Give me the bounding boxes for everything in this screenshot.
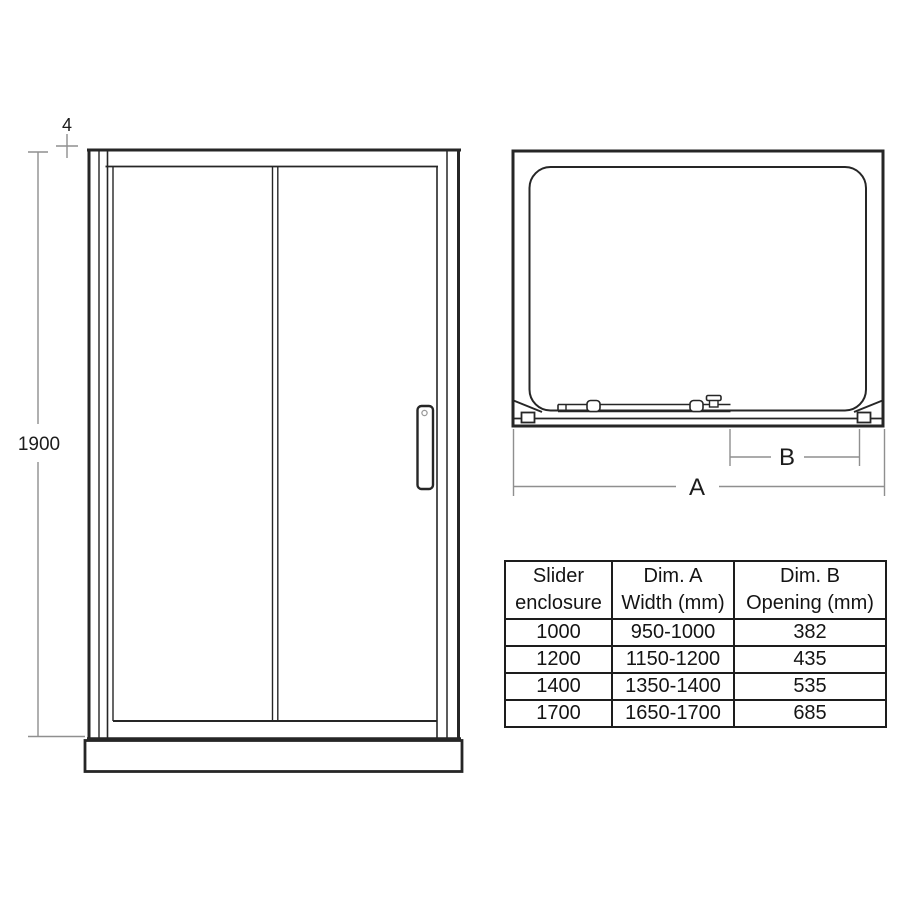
cell-dim-a-width: 1150-1200	[612, 646, 734, 673]
door-handle	[418, 406, 434, 489]
plan-view: B A	[513, 151, 885, 501]
front-elevation-view: 1900 4	[18, 115, 462, 772]
cell-dim-b-opening: 382	[734, 619, 886, 646]
plan-outer-frame	[513, 151, 883, 426]
cell-dim-a-width: 1350-1400	[612, 673, 734, 700]
enclosure-frame	[87, 149, 461, 740]
shower-tray-front	[85, 741, 462, 772]
table-row: 1700 1650-1700 685	[505, 700, 886, 727]
cell-dim-b-opening: 535	[734, 673, 886, 700]
table-row: 1400 1350-1400 535	[505, 673, 886, 700]
col-header-dim-a: Dim. A Width (mm)	[612, 561, 734, 619]
shower-enclosure-technical-drawing: 1900 4	[0, 0, 900, 900]
col-header-enclosure: Slider enclosure	[505, 561, 612, 619]
col-header-dim-b-line1: Dim. B	[780, 565, 840, 587]
cell-dim-a-width: 1650-1700	[612, 700, 734, 727]
cell-enclosure-size: 1700	[505, 700, 612, 727]
spec-table: Slider enclosure Dim. A Width (mm) Dim. …	[504, 560, 887, 728]
cell-dim-a-width: 950-1000	[612, 619, 734, 646]
cell-dim-b-opening: 685	[734, 700, 886, 727]
col-header-enclosure-line2: enclosure	[515, 592, 602, 614]
col-header-dim-a-line2: Width (mm)	[621, 592, 724, 614]
col-header-dim-b-line2: Opening (mm)	[746, 592, 874, 614]
top-gap-dimension-line	[56, 134, 78, 158]
table-row: 1200 1150-1200 435	[505, 646, 886, 673]
spec-table-header-row: Slider enclosure Dim. A Width (mm) Dim. …	[505, 561, 886, 619]
plan-roller-right	[690, 401, 703, 412]
top-gap-label: 4	[62, 115, 72, 135]
cell-enclosure-size: 1200	[505, 646, 612, 673]
cell-enclosure-size: 1400	[505, 673, 612, 700]
col-header-dim-b: Dim. B Opening (mm)	[734, 561, 886, 619]
drawing-svg: 1900 4	[0, 0, 900, 900]
height-dimension-label: 1900	[18, 434, 60, 455]
dim-a-label: A	[689, 474, 705, 501]
dim-b-label: B	[779, 444, 795, 471]
table-row: 1000 950-1000 382	[505, 619, 886, 646]
col-header-enclosure-line1: Slider	[533, 565, 584, 587]
cell-dim-b-opening: 435	[734, 646, 886, 673]
col-header-dim-a-line1: Dim. A	[644, 565, 703, 587]
plan-roller-left	[587, 401, 600, 412]
cell-enclosure-size: 1000	[505, 619, 612, 646]
